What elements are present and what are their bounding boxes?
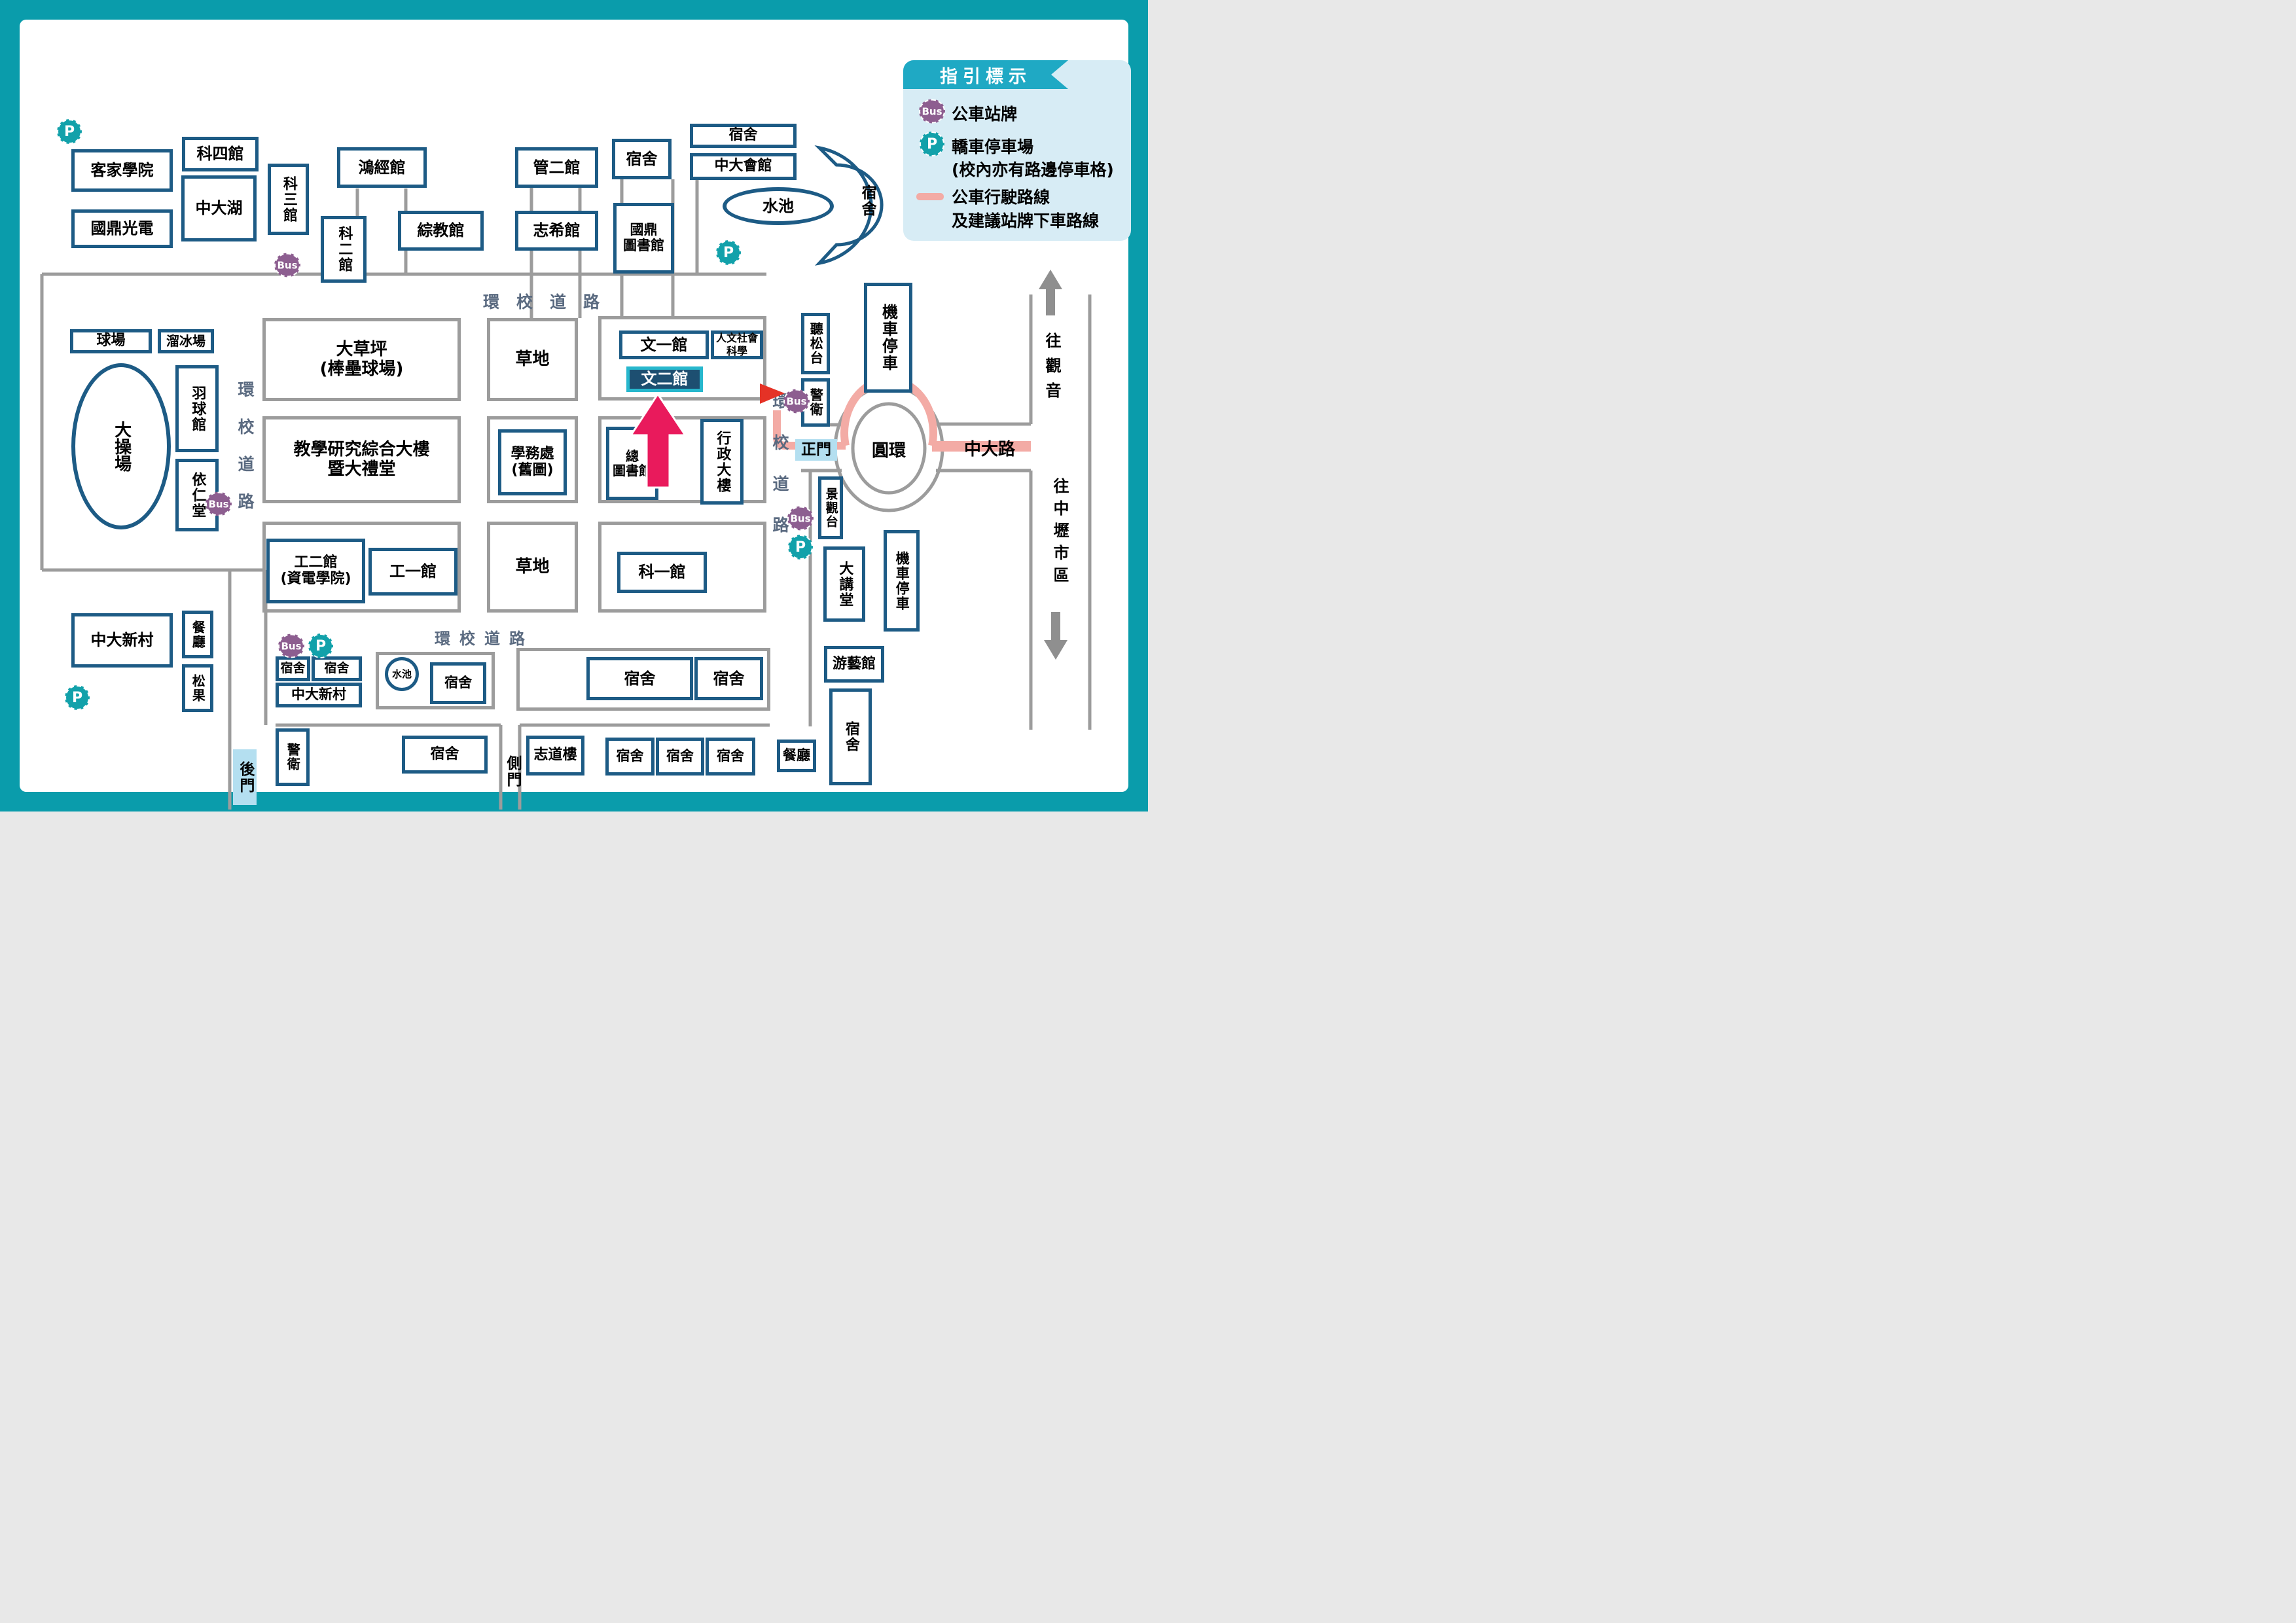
building-hongjing: 鴻經館 [337,147,427,188]
map-area: 大草坪 (棒壘球場) 草地 教學研究綜合大樓 暨大禮堂 草地 [20,20,1128,792]
building-badminton: 羽球館 [175,365,219,452]
parking-icon: P [65,685,90,710]
parcel-grass-1: 草地 [487,318,578,401]
north-arrow [1039,270,1062,315]
parcel-lawn-baseball: 大草坪 (棒壘球場) [262,318,461,401]
side-gate: 側門 [501,755,524,788]
ring-road-label-right: 環校道路 [768,393,791,558]
building-wen1: 文一館 [619,330,709,359]
building-guard-back: 警衛 [276,728,310,786]
bus-stop-icon: Bus [206,492,232,516]
building-dorm: 宿舍 [829,688,872,785]
legend-bus-icon: Bus [919,99,945,124]
building-zhongda-lake: 中大湖 [181,175,257,241]
parking-icon: P [308,633,333,658]
building-hakka: 客家學院 [71,149,173,192]
roundabout-label: 圓環 [863,437,915,461]
bus-stop-icon: Bus [783,389,810,414]
building-sci2: 科二館 [321,216,367,283]
building-main-library: 總 圖書館 [606,427,658,500]
building-hss: 人文社會科學 [711,330,763,359]
building-sci1: 科一館 [617,552,707,593]
ring-road-label-bottom: 環校道路 [425,626,543,649]
to-guanyin-label: 往觀音 [1041,332,1064,407]
building-eng2: 工二館 (資電學院) [266,539,365,603]
building-dorm: 宿舍 [690,124,797,148]
building-admin: 行政大樓 [700,419,744,505]
building-zhixi: 志希館 [515,211,598,251]
building-dorm: 宿舍 [430,662,486,704]
building-dorm: 宿舍 [612,139,672,179]
zhongda-road-label: 中大路 [954,436,1026,460]
to-zhongli-label: 往中壢市區 [1049,478,1071,589]
building-lookout: 景觀台 [818,476,843,539]
building-zhidao: 志道樓 [526,736,584,776]
back-gate: 後門 [233,749,257,805]
building-dorm: 宿舍 [586,657,693,700]
building-restaurant: 餐廳 [182,611,213,658]
building-zhongda-village: 中大新村 [71,613,173,668]
dorm-crescent-label: 宿舍 [856,185,878,217]
building-songguo: 松果 [182,664,213,712]
building-dorm: 宿舍 [605,738,655,776]
building-sci3: 科三館 [268,164,309,235]
building-lecture-hall: 大講堂 [823,546,865,622]
legend-title: 指引標示 [903,60,1068,89]
building-student-affairs: 學務處 (舊圖) [498,429,567,495]
main-gate: 正門 [795,439,837,461]
legend-route-swatch [916,193,944,200]
legend-panel: 指引標示 Bus 公車站牌 P 轎車停車場 (校內亦有路邊停車格) 公車行駛路線… [903,60,1131,241]
parking-icon: P [788,535,813,560]
building-kd-optics: 國鼎光電 [71,209,173,248]
building-skating: 溜冰場 [158,329,214,353]
building-moto-parking-south: 機車停車 [884,530,920,632]
building-kd-library: 國鼎 圖書館 [613,203,674,274]
parcel-grass-2: 草地 [487,522,578,613]
building-dorm: 宿舍 [312,656,362,681]
building-mgmt2: 管二館 [515,147,598,188]
building-eng1: 工一館 [368,548,457,596]
legend-route-label-2: 及建議站牌下車路線 [952,208,1099,232]
south-arrow [1044,612,1067,660]
building-moto-parking-north: 機車停車 [864,283,912,393]
parking-icon: P [57,119,82,144]
bus-stop-icon: Bus [787,507,814,531]
bus-stop-icon: Bus [278,634,304,658]
legend-parking-label: 轎車停車場 [952,134,1033,158]
building-sci4: 科四館 [182,137,259,171]
legend-parking-note: (校內亦有路邊停車格) [952,157,1114,181]
building-zhongda-village-2: 中大新村 [276,683,362,707]
bus-stop-icon: Bus [274,253,300,277]
pond-circle: 水池 [385,657,419,691]
building-court: 球場 [70,329,152,353]
building-dorm: 宿舍 [694,657,763,700]
building-restaurant: 餐廳 [777,740,816,772]
ring-road-label-left: 環校道路 [233,381,257,530]
target-building-wen2: 文二館 [626,366,703,392]
building-zhongda-hall: 中大會館 [690,153,797,180]
campus-map: 大草坪 (棒壘球場) 草地 教學研究綜合大樓 暨大禮堂 草地 [0,0,1148,811]
building-dorm: 宿舍 [656,738,704,776]
legend-parking-icon: P [920,132,944,156]
ring-road-label-top: 環校道路 [452,289,648,313]
legend-route-label-1: 公車行駛路線 [952,185,1050,208]
pond-ellipse: 水池 [723,187,834,225]
parcel-teaching: 教學研究綜合大樓 暨大禮堂 [262,416,461,503]
parking-icon: P [716,240,741,265]
building-youyi: 游藝館 [824,646,884,683]
building-dorm: 宿舍 [706,738,755,776]
building-tingsong: 聽松台 [801,313,830,374]
building-zongjiao: 綜教館 [398,211,484,251]
playground-ellipse: 大操場 [71,363,171,529]
legend-bus-label: 公車站牌 [952,101,1017,125]
building-dorm: 宿舍 [402,736,488,774]
building-dorm: 宿舍 [276,656,310,681]
